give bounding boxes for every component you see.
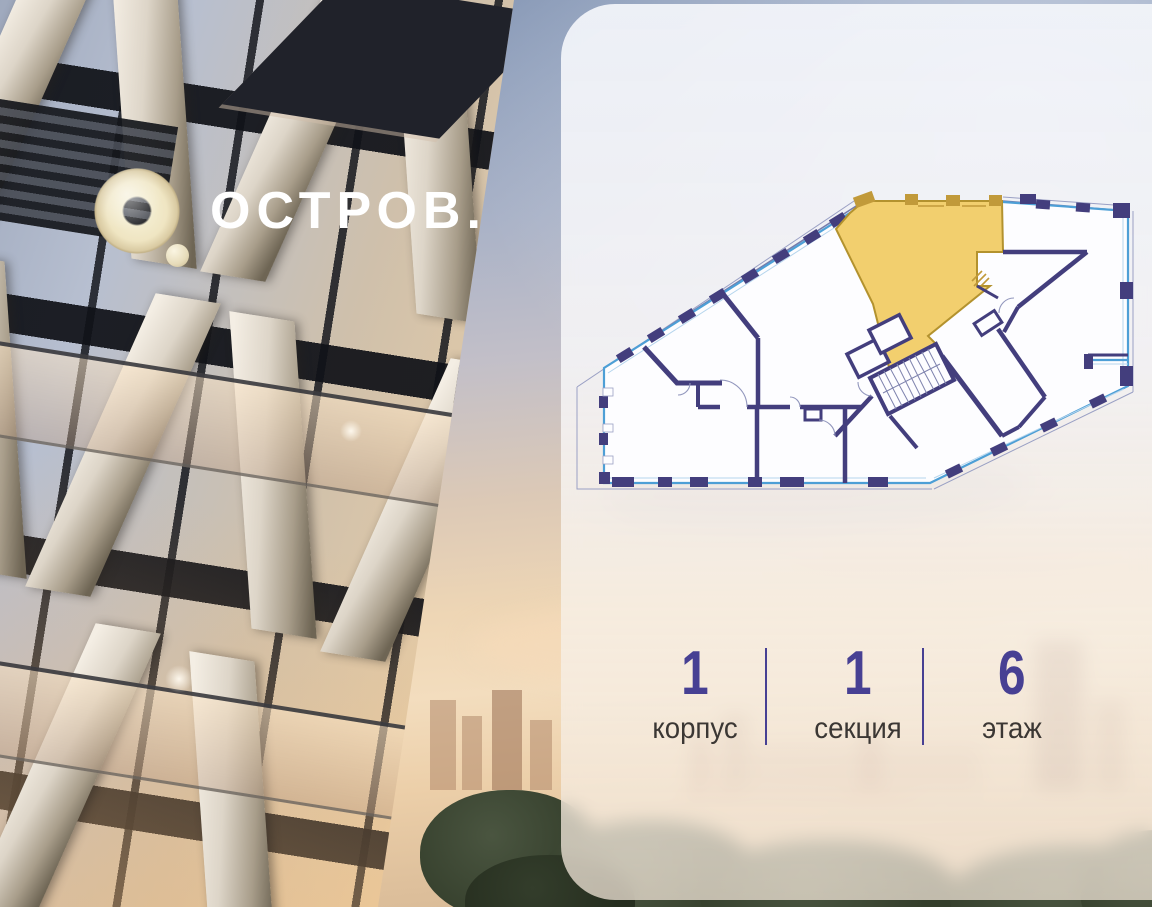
city-tower: [530, 720, 552, 790]
city-tower: [492, 690, 522, 790]
building-number: 1: [681, 644, 709, 704]
apartment-info-row: 1 корпус 1 секция 6 этаж: [561, 4, 1151, 900]
logo-text: ОСТРОВ.: [210, 168, 487, 254]
info-building: 1 корпус: [649, 644, 742, 746]
info-floor: 6 этаж: [980, 644, 1045, 746]
floor-number: 6: [998, 644, 1026, 704]
info-section: 1 секция: [811, 644, 906, 746]
floor-label: этаж: [982, 712, 1042, 746]
sun-glint: [165, 665, 193, 693]
city-tower: [462, 716, 482, 790]
floor-plan-card: 1 корпус 1 секция 6 этаж: [561, 4, 1152, 900]
building-label: корпус: [652, 712, 737, 746]
city-tower: [430, 700, 456, 790]
info-divider: [922, 648, 924, 745]
info-divider: [765, 648, 767, 745]
page: ОСТРОВ.: [0, 0, 1152, 907]
sun-glint: [340, 420, 362, 442]
logo-dot-icon: [166, 244, 189, 267]
section-number: 1: [844, 644, 872, 704]
brand-logo[interactable]: ОСТРОВ.: [94, 168, 487, 254]
logo-donut-icon: [94, 168, 180, 254]
section-label: секция: [814, 712, 901, 746]
